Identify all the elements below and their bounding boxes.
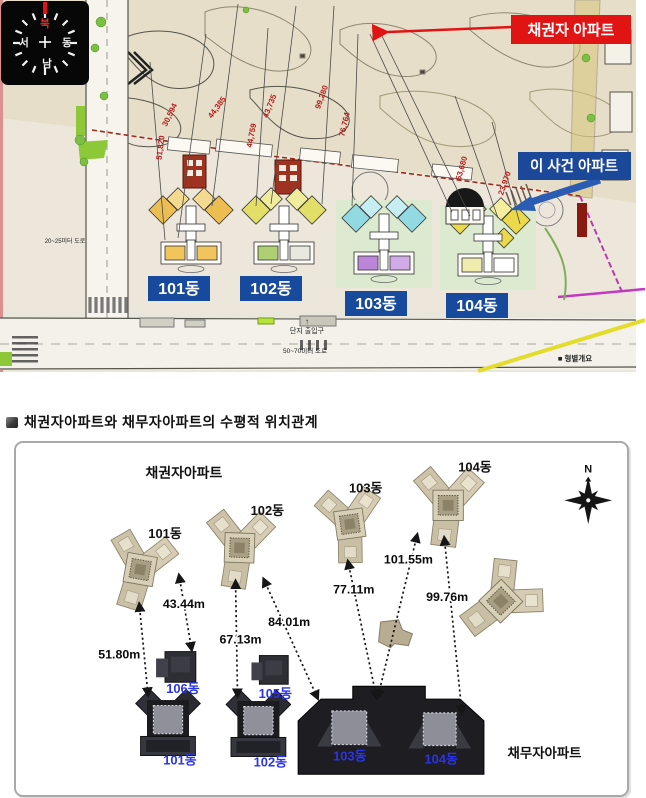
debtor-label-104: 104동: [424, 751, 458, 766]
creditor-group-title: 채권자아파트: [146, 465, 223, 481]
map-compass: 북 남 서 동: [1, 1, 89, 85]
compass-west-label: 서: [19, 36, 29, 49]
map-label-102-text: 102동: [250, 280, 292, 298]
site-plan-map: 30,594 51,820 44,385 44,759 43,735 99,28…: [0, 0, 646, 378]
position-diagram-panel: 채권자아파트 채무자아파트 N 101동 102동 103동 104동: [14, 441, 629, 797]
debtor-group-title: 채무자아파트: [508, 744, 582, 760]
debtor-label-102: 102동: [254, 754, 288, 769]
debtor-label-101: 101동: [163, 752, 197, 767]
low-rise-building: [379, 620, 413, 648]
creditor-label-104: 104동: [458, 460, 492, 475]
creditor-banner-text: 채권자 아파트: [528, 21, 615, 39]
map-label-103-text: 103동: [355, 295, 397, 313]
map-label-104-text: 104동: [456, 297, 498, 315]
compass-n-label: N: [584, 464, 592, 476]
distance-arrow: [348, 561, 377, 698]
compass-south-label: 남: [42, 57, 52, 70]
legend-label: ■ 형별개요: [558, 353, 592, 363]
distance-67-13: 67.13m: [219, 633, 261, 647]
debtor-label-106: 106동: [166, 681, 200, 696]
creditor-tower-102: [202, 508, 277, 591]
debtor-tower-105: [251, 656, 288, 685]
creditor-tower-104: [411, 466, 485, 548]
entrance-arrow-icon: ↑: [305, 317, 309, 326]
distance-43-44: 43.44m: [163, 597, 205, 611]
debtor-tower-106: [156, 652, 196, 683]
title-bullet-icon: [6, 417, 18, 428]
entrance-label: 단지 출입구: [290, 326, 325, 335]
compass-north-pointer: [43, 2, 47, 14]
distance-84-01: 84.01m: [268, 615, 310, 629]
debtor-tower-101: [136, 689, 201, 755]
distance-arrow: [444, 537, 462, 714]
distance-101-55: 101.55m: [384, 553, 433, 567]
compass-east-label: 동: [62, 37, 72, 49]
map-label-104: 104동: [446, 293, 508, 318]
map-label-103: 103동: [345, 291, 407, 316]
compass-north-label: 북: [40, 18, 50, 30]
distance-77-11: 77.11m: [333, 582, 374, 596]
map-label-102: 102동: [240, 276, 302, 301]
creditor-tower-103: [313, 485, 387, 567]
creditor-label-101: 101동: [148, 526, 182, 541]
distance-arrow: [139, 603, 148, 696]
figure-page: 30,594 51,820 44,385 44,759 43,735 99,28…: [0, 0, 646, 798]
creditor-buildings: [98, 466, 554, 657]
position-diagram-svg: 채권자아파트 채무자아파트 N 101동 102동 103동 104동: [16, 443, 623, 791]
road-bottom-label: 50~70미터 도로: [283, 346, 327, 355]
map-label-101: 101동: [148, 276, 210, 301]
map-label-101-text: 101동: [158, 280, 200, 298]
road-left-label: 20~25미터 도로: [45, 237, 86, 245]
diagram-compass-rose: N: [564, 464, 612, 524]
creditor-label-103: 103동: [349, 480, 383, 495]
distance-99-76: 99.76m: [426, 590, 468, 604]
crosswalk: [90, 297, 126, 313]
case-banner-text: 이 사건 아파트: [530, 158, 618, 175]
site-plan-svg: 30,594 51,820 44,385 44,759 43,735 99,28…: [0, 0, 646, 378]
diagram-title: 채권자아파트와 채무자아파트의 수평적 위치관계: [6, 412, 626, 432]
diagram-title-text: 채권자아파트와 채무자아파트의 수평적 위치관계: [24, 412, 318, 432]
creditor-label-102: 102동: [251, 503, 285, 518]
debtor-label-105: 105동: [259, 686, 293, 701]
distance-51-80: 51.80m: [98, 648, 140, 662]
debtor-label-103: 103동: [333, 748, 367, 763]
distance-arrow: [179, 574, 192, 650]
